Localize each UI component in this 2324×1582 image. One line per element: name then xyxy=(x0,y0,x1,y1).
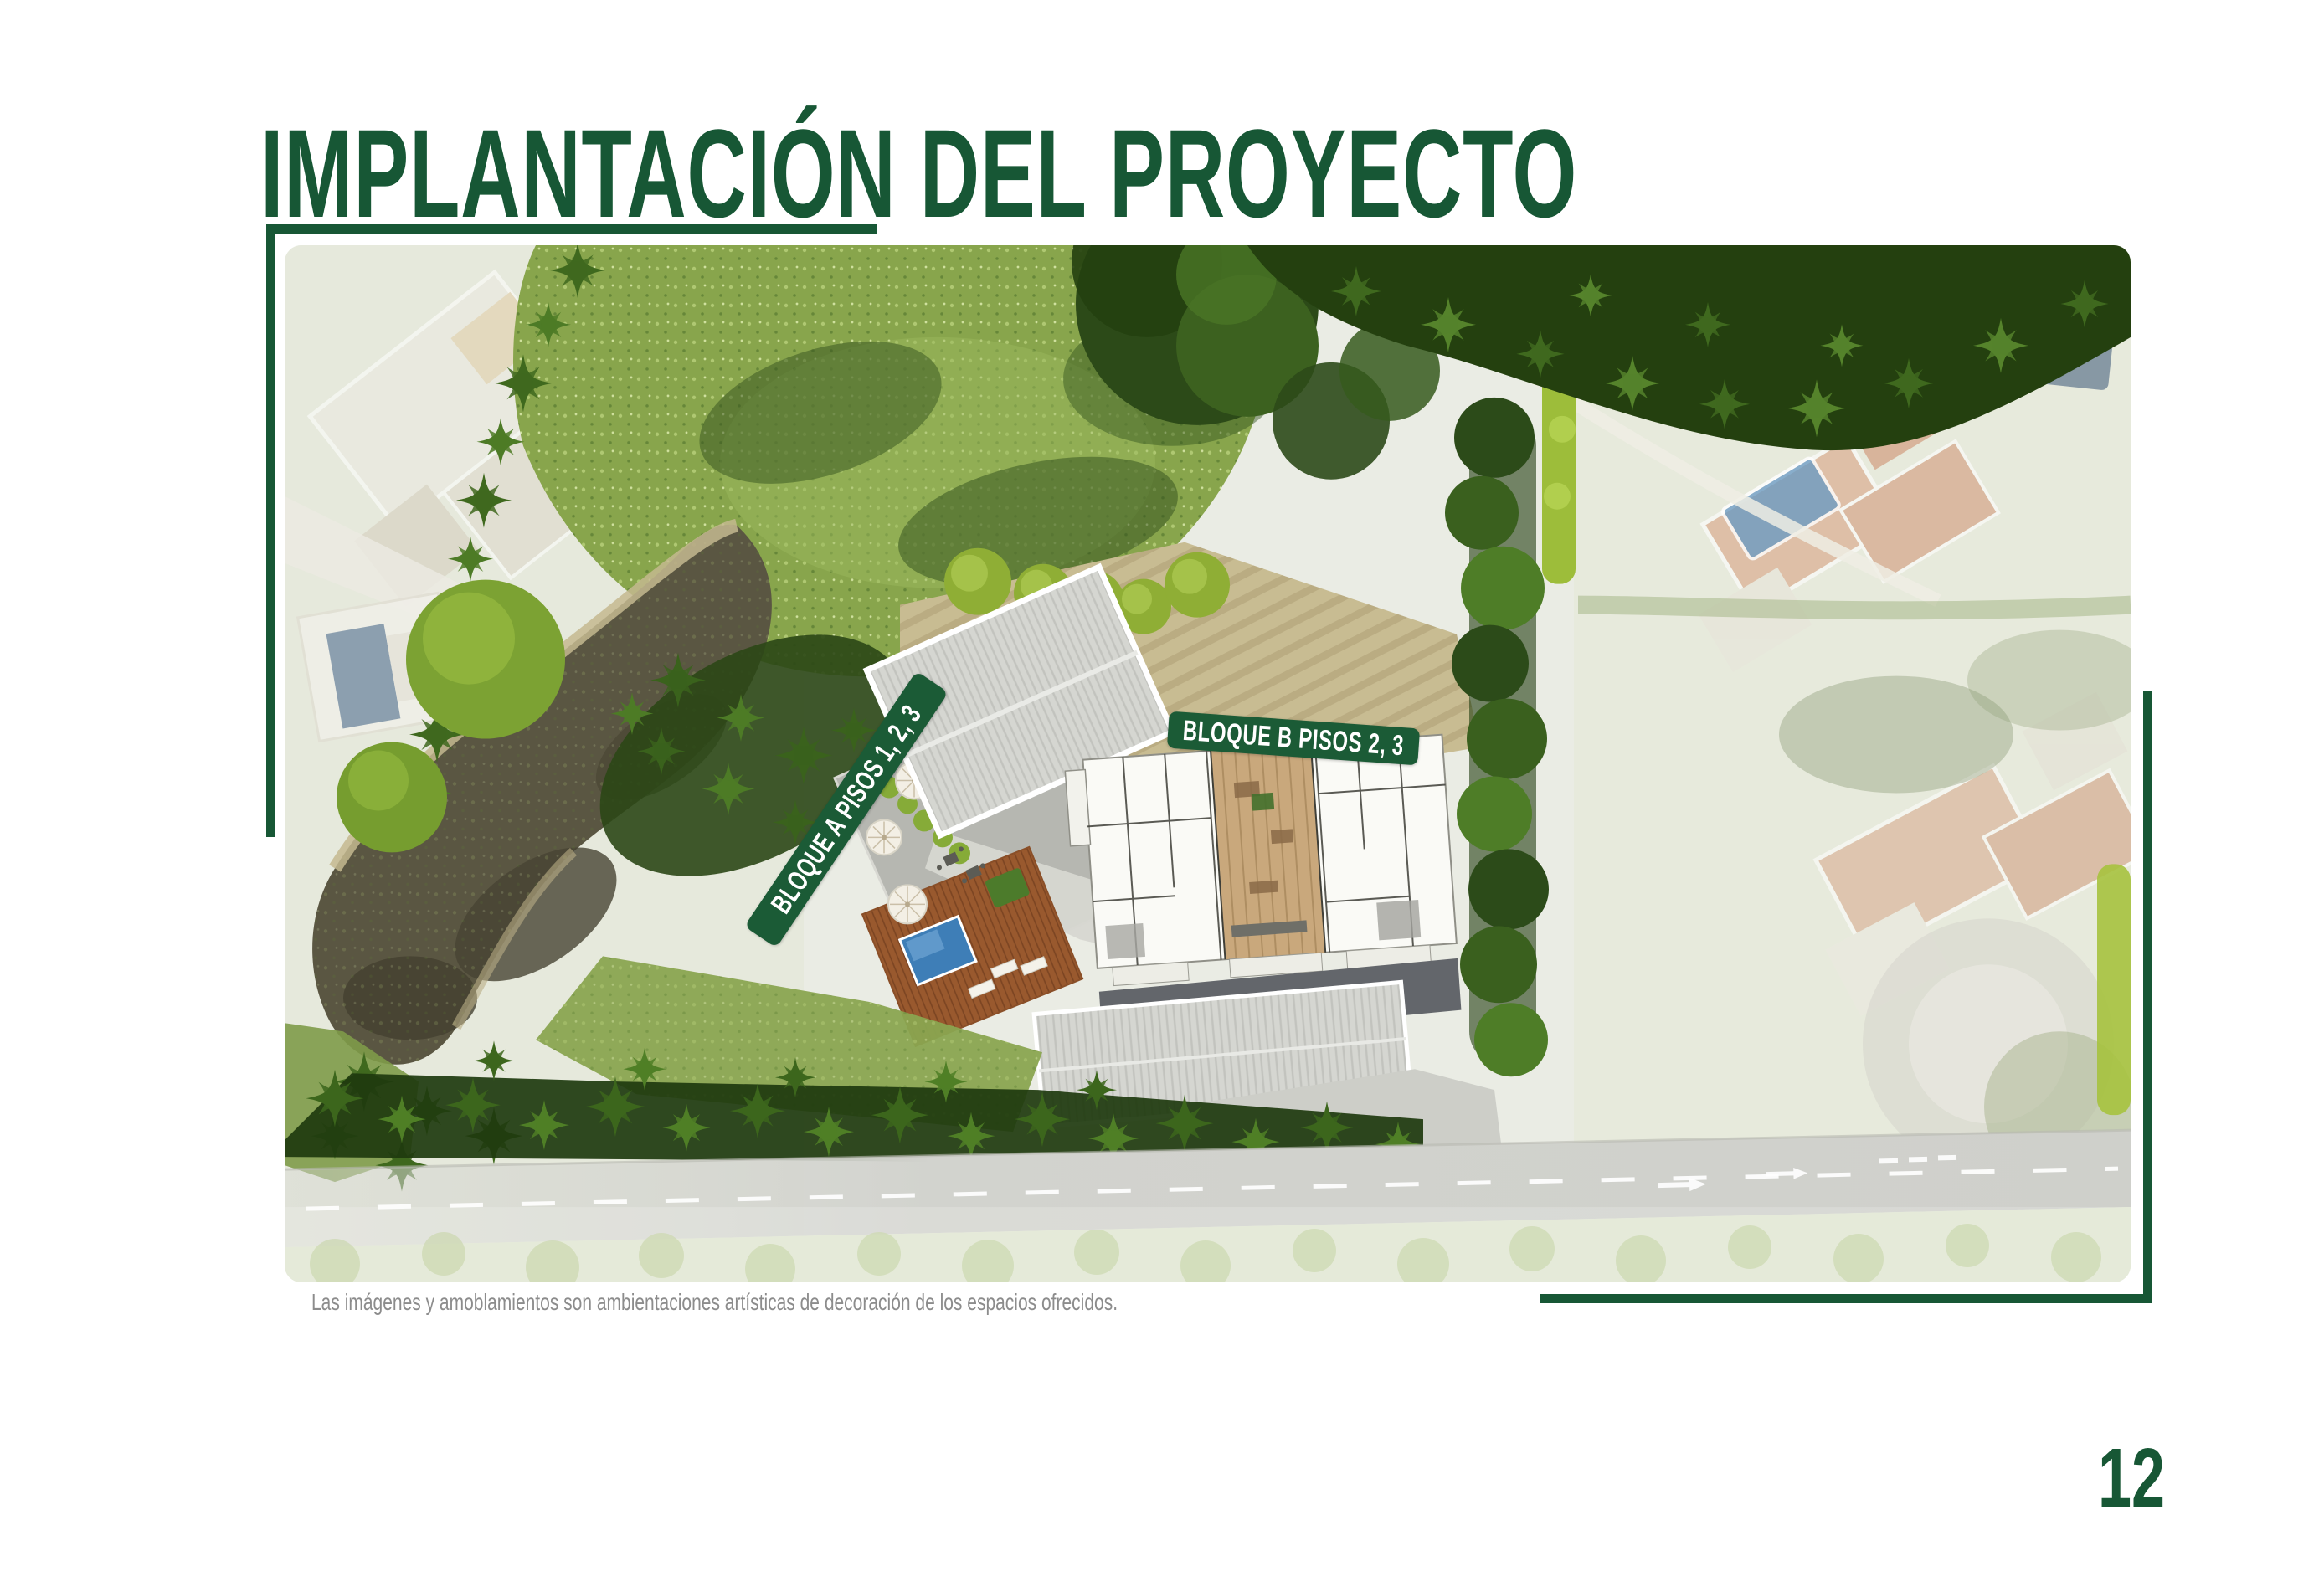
frame-line-left xyxy=(266,224,275,837)
frame-line-bottom xyxy=(1540,1294,2152,1303)
brochure-page: IMPLANTACIÓN DEL PROYECTO xyxy=(0,0,2324,1582)
aerial-render xyxy=(285,245,2131,1282)
page-title: IMPLANTACIÓN DEL PROYECTO xyxy=(260,110,1577,236)
page-number: 12 xyxy=(2098,1436,2165,1520)
site-plan-image: BLOQUE A PISOS 1, 2, 3 BLOQUE B PISOS 2,… xyxy=(285,245,2131,1282)
frame-line-top xyxy=(266,224,877,234)
frame-line-right xyxy=(2143,691,2152,1303)
disclaimer-text: Las imágenes y amoblamientos son ambient… xyxy=(311,1289,1118,1316)
washed-bottom-band xyxy=(285,1207,2131,1282)
